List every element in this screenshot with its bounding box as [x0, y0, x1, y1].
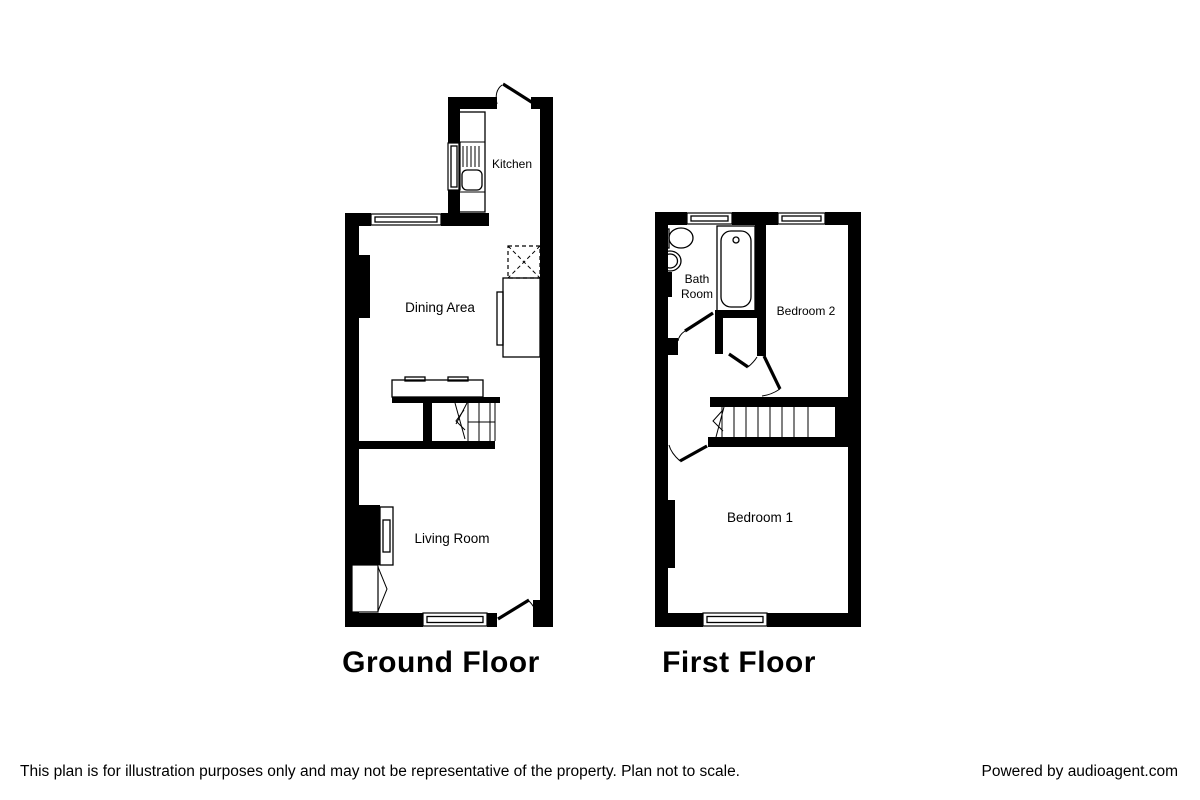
floorplan-drawing: Kitchen Dining Area Living Room: [0, 0, 1200, 760]
wall-right: [848, 212, 861, 627]
disclaimer-text: This plan is for illustration purposes o…: [20, 763, 740, 781]
wall-kitchen-left-upper: [448, 97, 460, 143]
stair-wall-top: [392, 397, 500, 403]
stair-wall-top: [710, 397, 848, 407]
bedroom2-door: [762, 356, 780, 396]
stair-wall-bottom: [359, 441, 495, 449]
first-floor-plan: Bath Room Bedroom 2 Bedroom 1: [655, 212, 861, 627]
wall-bottom-corner: [533, 600, 553, 627]
cupboard-door: [729, 354, 757, 367]
ground-stairs: [455, 403, 495, 441]
floorplan-page: Kitchen Dining Area Living Room: [0, 0, 1200, 800]
wall-top-b: [732, 212, 778, 225]
dining-chimney-breast: [352, 255, 370, 318]
dining-sideboard: [392, 377, 483, 397]
kitchen-door: [496, 84, 533, 104]
bedroom1-window: [703, 613, 767, 626]
wall-bottom-a: [655, 613, 703, 627]
bathroom-door: [678, 313, 713, 341]
dining-window: [371, 214, 441, 225]
dining-hatch-box: [508, 246, 540, 278]
bedroom2-label: Bedroom 2: [777, 304, 836, 318]
first-floor-stairs: [713, 407, 808, 437]
ground-floor-title: Ground Floor: [342, 646, 540, 679]
kitchen-window: [448, 143, 460, 190]
footer: This plan is for illustration purposes o…: [20, 763, 1178, 781]
cupboard-wall-right: [757, 318, 766, 356]
bathroom-label-line1: Bath: [685, 272, 710, 286]
dining-tall-unit: [497, 278, 540, 357]
bedroom1-chimney-breast: [662, 500, 675, 568]
bedroom1-door: [669, 445, 707, 461]
bath-chimney-stub: [660, 272, 672, 297]
living-chimney-breast: [352, 505, 380, 565]
landing-door-stub: [660, 338, 678, 355]
kitchen-sink-unit: [459, 112, 485, 212]
wall-bottom-b: [767, 613, 861, 627]
wall-top-c: [825, 212, 861, 225]
ground-floor-plan: Kitchen Dining Area Living Room: [345, 84, 553, 627]
bedroom2-window: [778, 213, 825, 224]
wall-right: [540, 97, 553, 627]
living-label: Living Room: [414, 531, 489, 546]
wall-dining-top-b: [441, 213, 489, 226]
cupboard-wall-left: [715, 318, 723, 354]
wall-top-a: [655, 212, 687, 225]
wall-bottom-a: [345, 613, 423, 627]
powered-by-text: Powered by audioagent.com: [982, 763, 1178, 781]
stair-wall-vertical: [423, 402, 432, 442]
basin: [659, 251, 681, 271]
living-window: [423, 613, 487, 626]
first-floor-title: First Floor: [662, 646, 816, 679]
bathroom-window: [687, 213, 732, 224]
bathtub: [717, 226, 755, 312]
fireplace: [380, 507, 393, 565]
dining-label: Dining Area: [405, 300, 475, 315]
wall-under-bath: [715, 310, 766, 318]
front-door: [498, 600, 536, 619]
alcove-cupboard: [352, 565, 387, 612]
bedroom1-label: Bedroom 1: [727, 510, 793, 525]
bath-divider-wall: [755, 225, 766, 310]
bathroom-label-line2: Room: [681, 287, 713, 301]
wall-kitchen-top-corner: [531, 97, 553, 109]
stair-wall-bottom: [708, 437, 861, 447]
kitchen-label: Kitchen: [492, 157, 532, 171]
wall-bottom-jamb: [487, 613, 497, 627]
